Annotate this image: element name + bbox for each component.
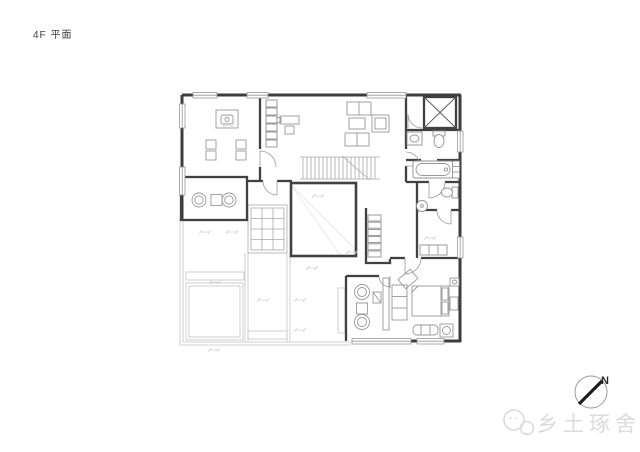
desk-chair — [285, 126, 294, 134]
dimension-marks — [199, 124, 436, 352]
elevator-shaft — [424, 97, 456, 128]
toilet-bowl — [434, 135, 444, 148]
void-sightlines — [292, 186, 354, 255]
staircase — [300, 156, 380, 180]
bath-cabinet — [453, 161, 460, 178]
watermark-brand: 乡土琢舍 — [537, 408, 640, 438]
skylight-grid — [248, 205, 287, 253]
side-cabinet — [450, 297, 458, 310]
work-desk — [280, 116, 299, 124]
bed — [412, 286, 449, 316]
console — [383, 278, 389, 330]
page: 4F 平面 乡土琢舍 N — [0, 0, 640, 452]
studio-furniture — [266, 100, 389, 147]
computer-icon — [221, 115, 233, 124]
round-chair — [355, 285, 370, 300]
chair — [206, 140, 216, 149]
tea-table — [357, 303, 368, 314]
floor-plan — [0, 0, 640, 452]
bench — [413, 325, 438, 335]
pillow — [442, 288, 448, 300]
pillow — [442, 302, 448, 314]
compass-needle — [579, 381, 602, 404]
watermark-logo — [504, 410, 534, 435]
lounge-chair — [222, 193, 236, 207]
office-door — [260, 151, 276, 167]
round-sink — [417, 201, 428, 212]
closet-bench — [420, 245, 447, 255]
bathroom-fixtures — [407, 131, 460, 212]
compass-north-label: N — [601, 375, 609, 387]
toilet2-bowl — [442, 188, 453, 197]
page-title: 4F 平面 — [33, 26, 72, 41]
corridor-door — [263, 181, 277, 195]
office-furniture — [192, 110, 246, 207]
side-table — [211, 195, 222, 206]
vanity — [407, 132, 422, 145]
sitting-area-furniture — [355, 278, 390, 330]
coffee-table — [349, 118, 365, 129]
nightstand — [450, 278, 459, 286]
chair — [236, 151, 246, 160]
lobby-door — [408, 114, 422, 128]
chair — [206, 151, 216, 160]
office-desk — [216, 110, 238, 128]
round-chair — [355, 315, 370, 330]
terrace — [180, 219, 351, 345]
stool — [440, 324, 453, 337]
lounge-chair — [192, 193, 206, 207]
closet-door — [437, 210, 451, 224]
bedroom-sofa — [392, 285, 407, 320]
closet-shelving — [368, 215, 447, 257]
bedroom-furniture — [392, 269, 459, 337]
chair — [236, 140, 246, 149]
